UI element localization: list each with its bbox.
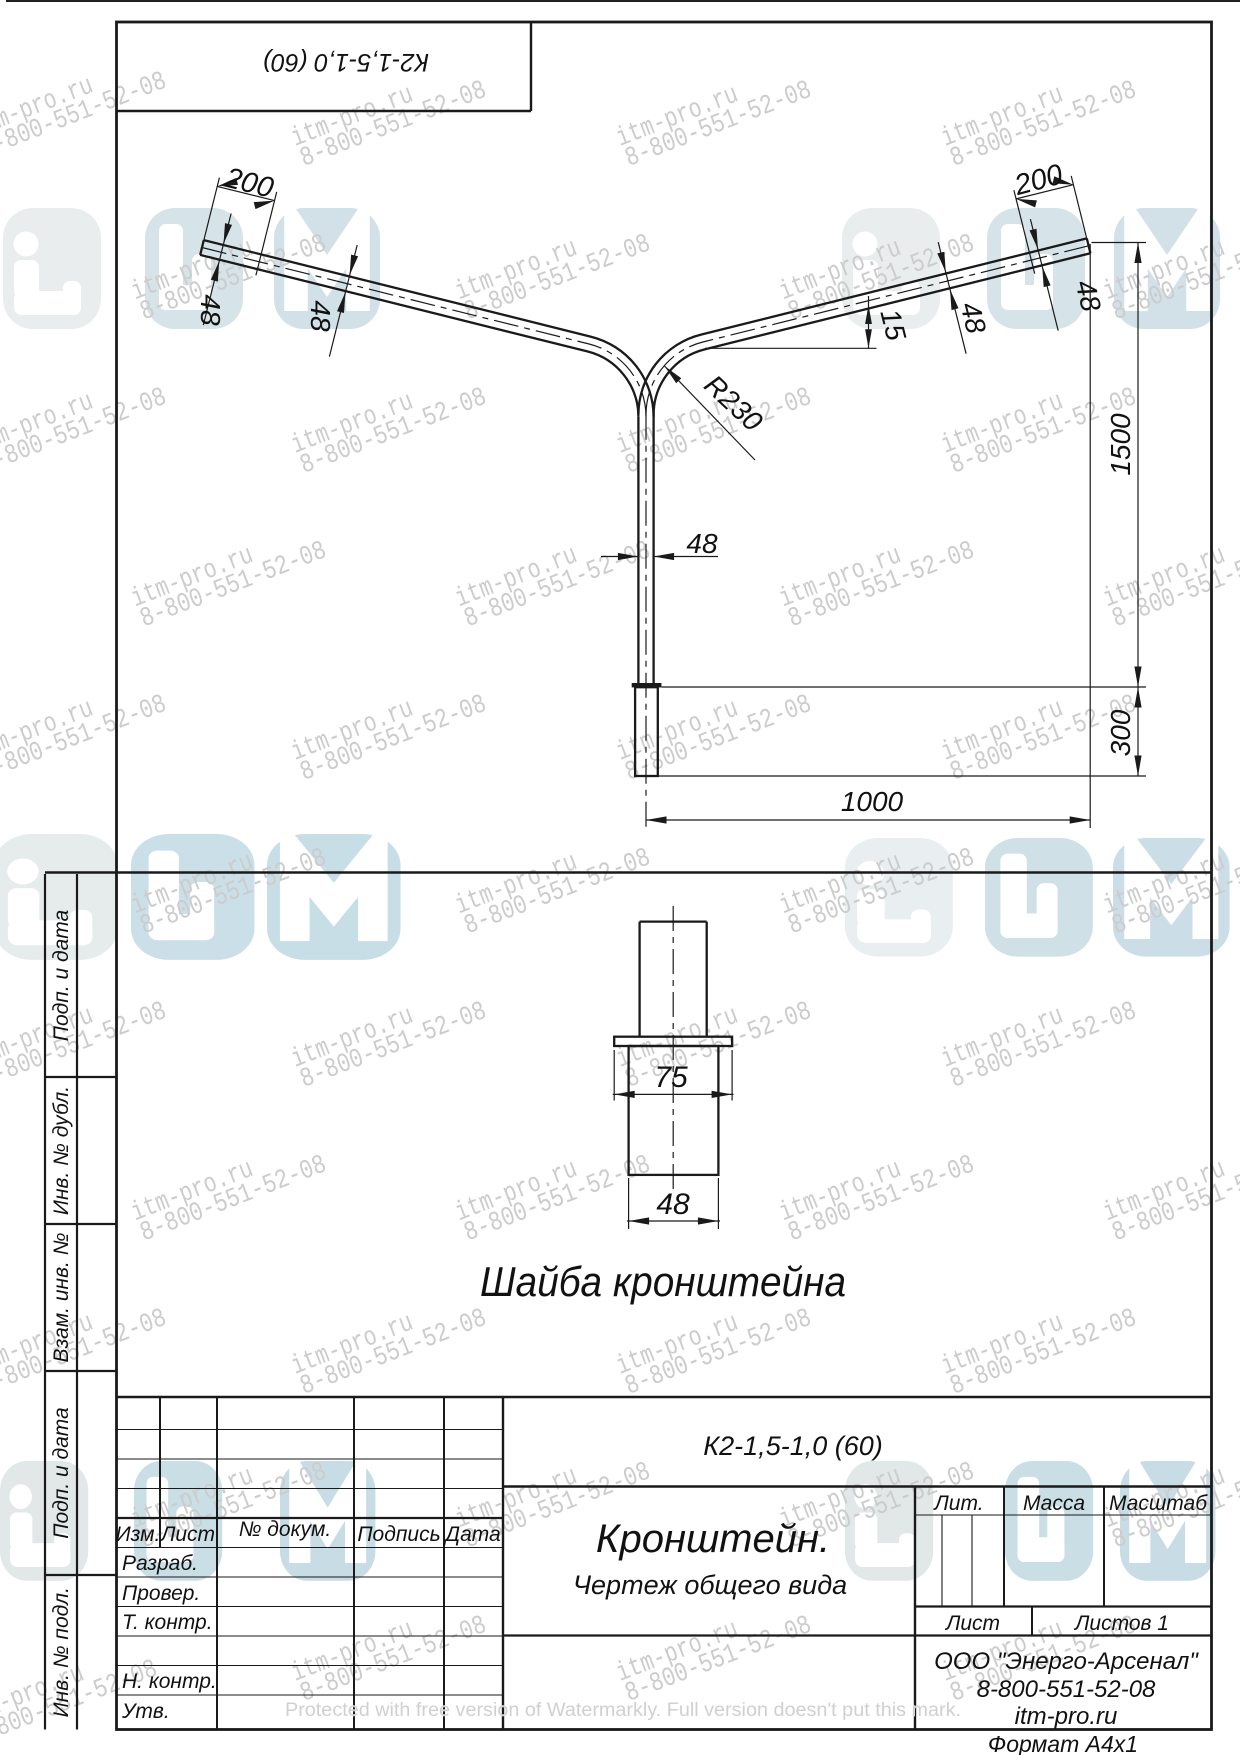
svg-text:Кронштейн.: Кронштейн. xyxy=(596,1517,830,1561)
svg-text:ООО "Энерго-Арсенал": ООО "Энерго-Арсенал" xyxy=(934,1648,1199,1675)
svg-text:Формат А4х1: Формат А4х1 xyxy=(988,1731,1138,1755)
svg-text:Взам. инв. №: Взам. инв. № xyxy=(50,1233,73,1363)
svg-text:Лист: Лист xyxy=(159,1523,215,1546)
svg-text:Шайба кронштейна: Шайба кронштейна xyxy=(480,1258,846,1305)
svg-text:Подп. и дата: Подп. и дата xyxy=(50,1407,73,1538)
svg-text:48: 48 xyxy=(686,528,718,559)
svg-text:Масштаб: Масштаб xyxy=(1109,1492,1208,1515)
svg-text:48: 48 xyxy=(656,1188,690,1221)
svg-text:Утв.: Утв. xyxy=(121,1700,170,1723)
svg-text:75: 75 xyxy=(654,1061,688,1094)
svg-text:Масса: Масса xyxy=(1023,1492,1085,1515)
svg-text:Инв. № дубл.: Инв. № дубл. xyxy=(50,1086,73,1215)
svg-text:itm-pro.ru: itm-pro.ru xyxy=(1015,1703,1118,1730)
svg-text:Изм.: Изм. xyxy=(116,1523,161,1546)
svg-text:К2-1,5-1,0 (60): К2-1,5-1,0 (60) xyxy=(263,48,429,76)
svg-text:300: 300 xyxy=(1105,709,1136,756)
svg-text:1500: 1500 xyxy=(1105,413,1136,476)
svg-text:8-800-551-52-08: 8-800-551-52-08 xyxy=(977,1676,1156,1703)
svg-text:Чертеж общего вида: Чертеж общего вида xyxy=(573,1570,847,1600)
svg-text:К2-1,5-1,0 (60): К2-1,5-1,0 (60) xyxy=(703,1431,883,1461)
svg-text:48: 48 xyxy=(305,300,336,332)
svg-text:Н. контр.: Н. контр. xyxy=(122,1670,217,1693)
svg-text:№ докум.: № докум. xyxy=(239,1518,332,1541)
svg-text:Подпись: Подпись xyxy=(357,1523,440,1546)
svg-text:48: 48 xyxy=(195,294,226,326)
svg-text:Разраб.: Разраб. xyxy=(122,1552,198,1575)
svg-text:Листов 1: Листов 1 xyxy=(1073,1612,1169,1635)
svg-text:1000: 1000 xyxy=(841,786,904,817)
svg-text:Protected with free version of: Protected with free version of Watermark… xyxy=(285,1700,961,1721)
svg-text:Лит.: Лит. xyxy=(932,1492,983,1515)
svg-text:Подп. и дата: Подп. и дата xyxy=(50,910,73,1041)
svg-text:Дата: Дата xyxy=(443,1523,500,1546)
svg-text:Провер.: Провер. xyxy=(122,1582,200,1605)
svg-text:Инв. № подл.: Инв. № подл. xyxy=(50,1587,73,1717)
svg-text:Лист: Лист xyxy=(944,1612,1000,1635)
svg-text:Т. контр.: Т. контр. xyxy=(122,1611,213,1634)
